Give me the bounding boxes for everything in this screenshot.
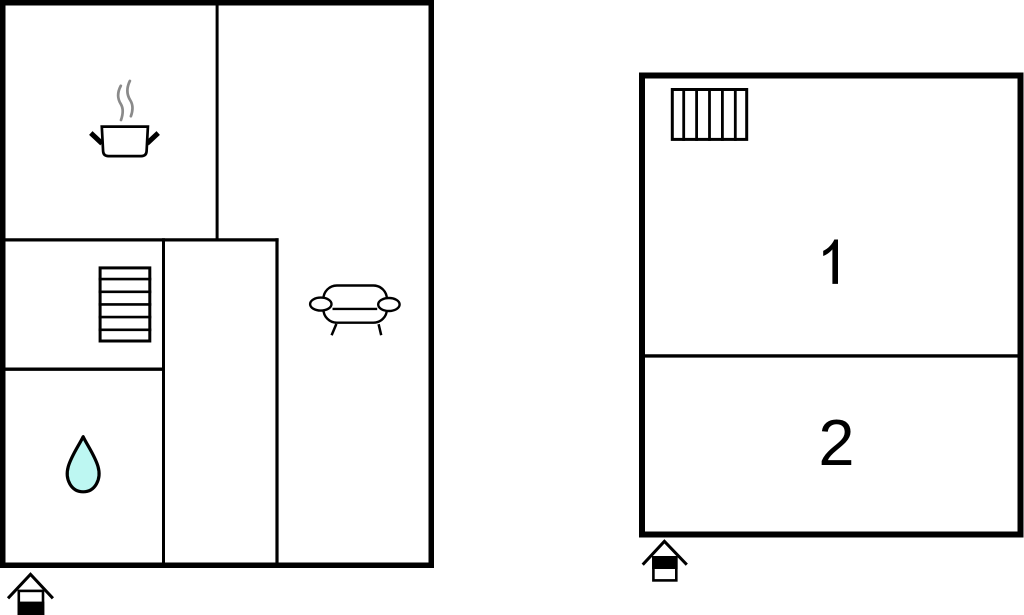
svg-text:2: 2 bbox=[818, 406, 854, 479]
